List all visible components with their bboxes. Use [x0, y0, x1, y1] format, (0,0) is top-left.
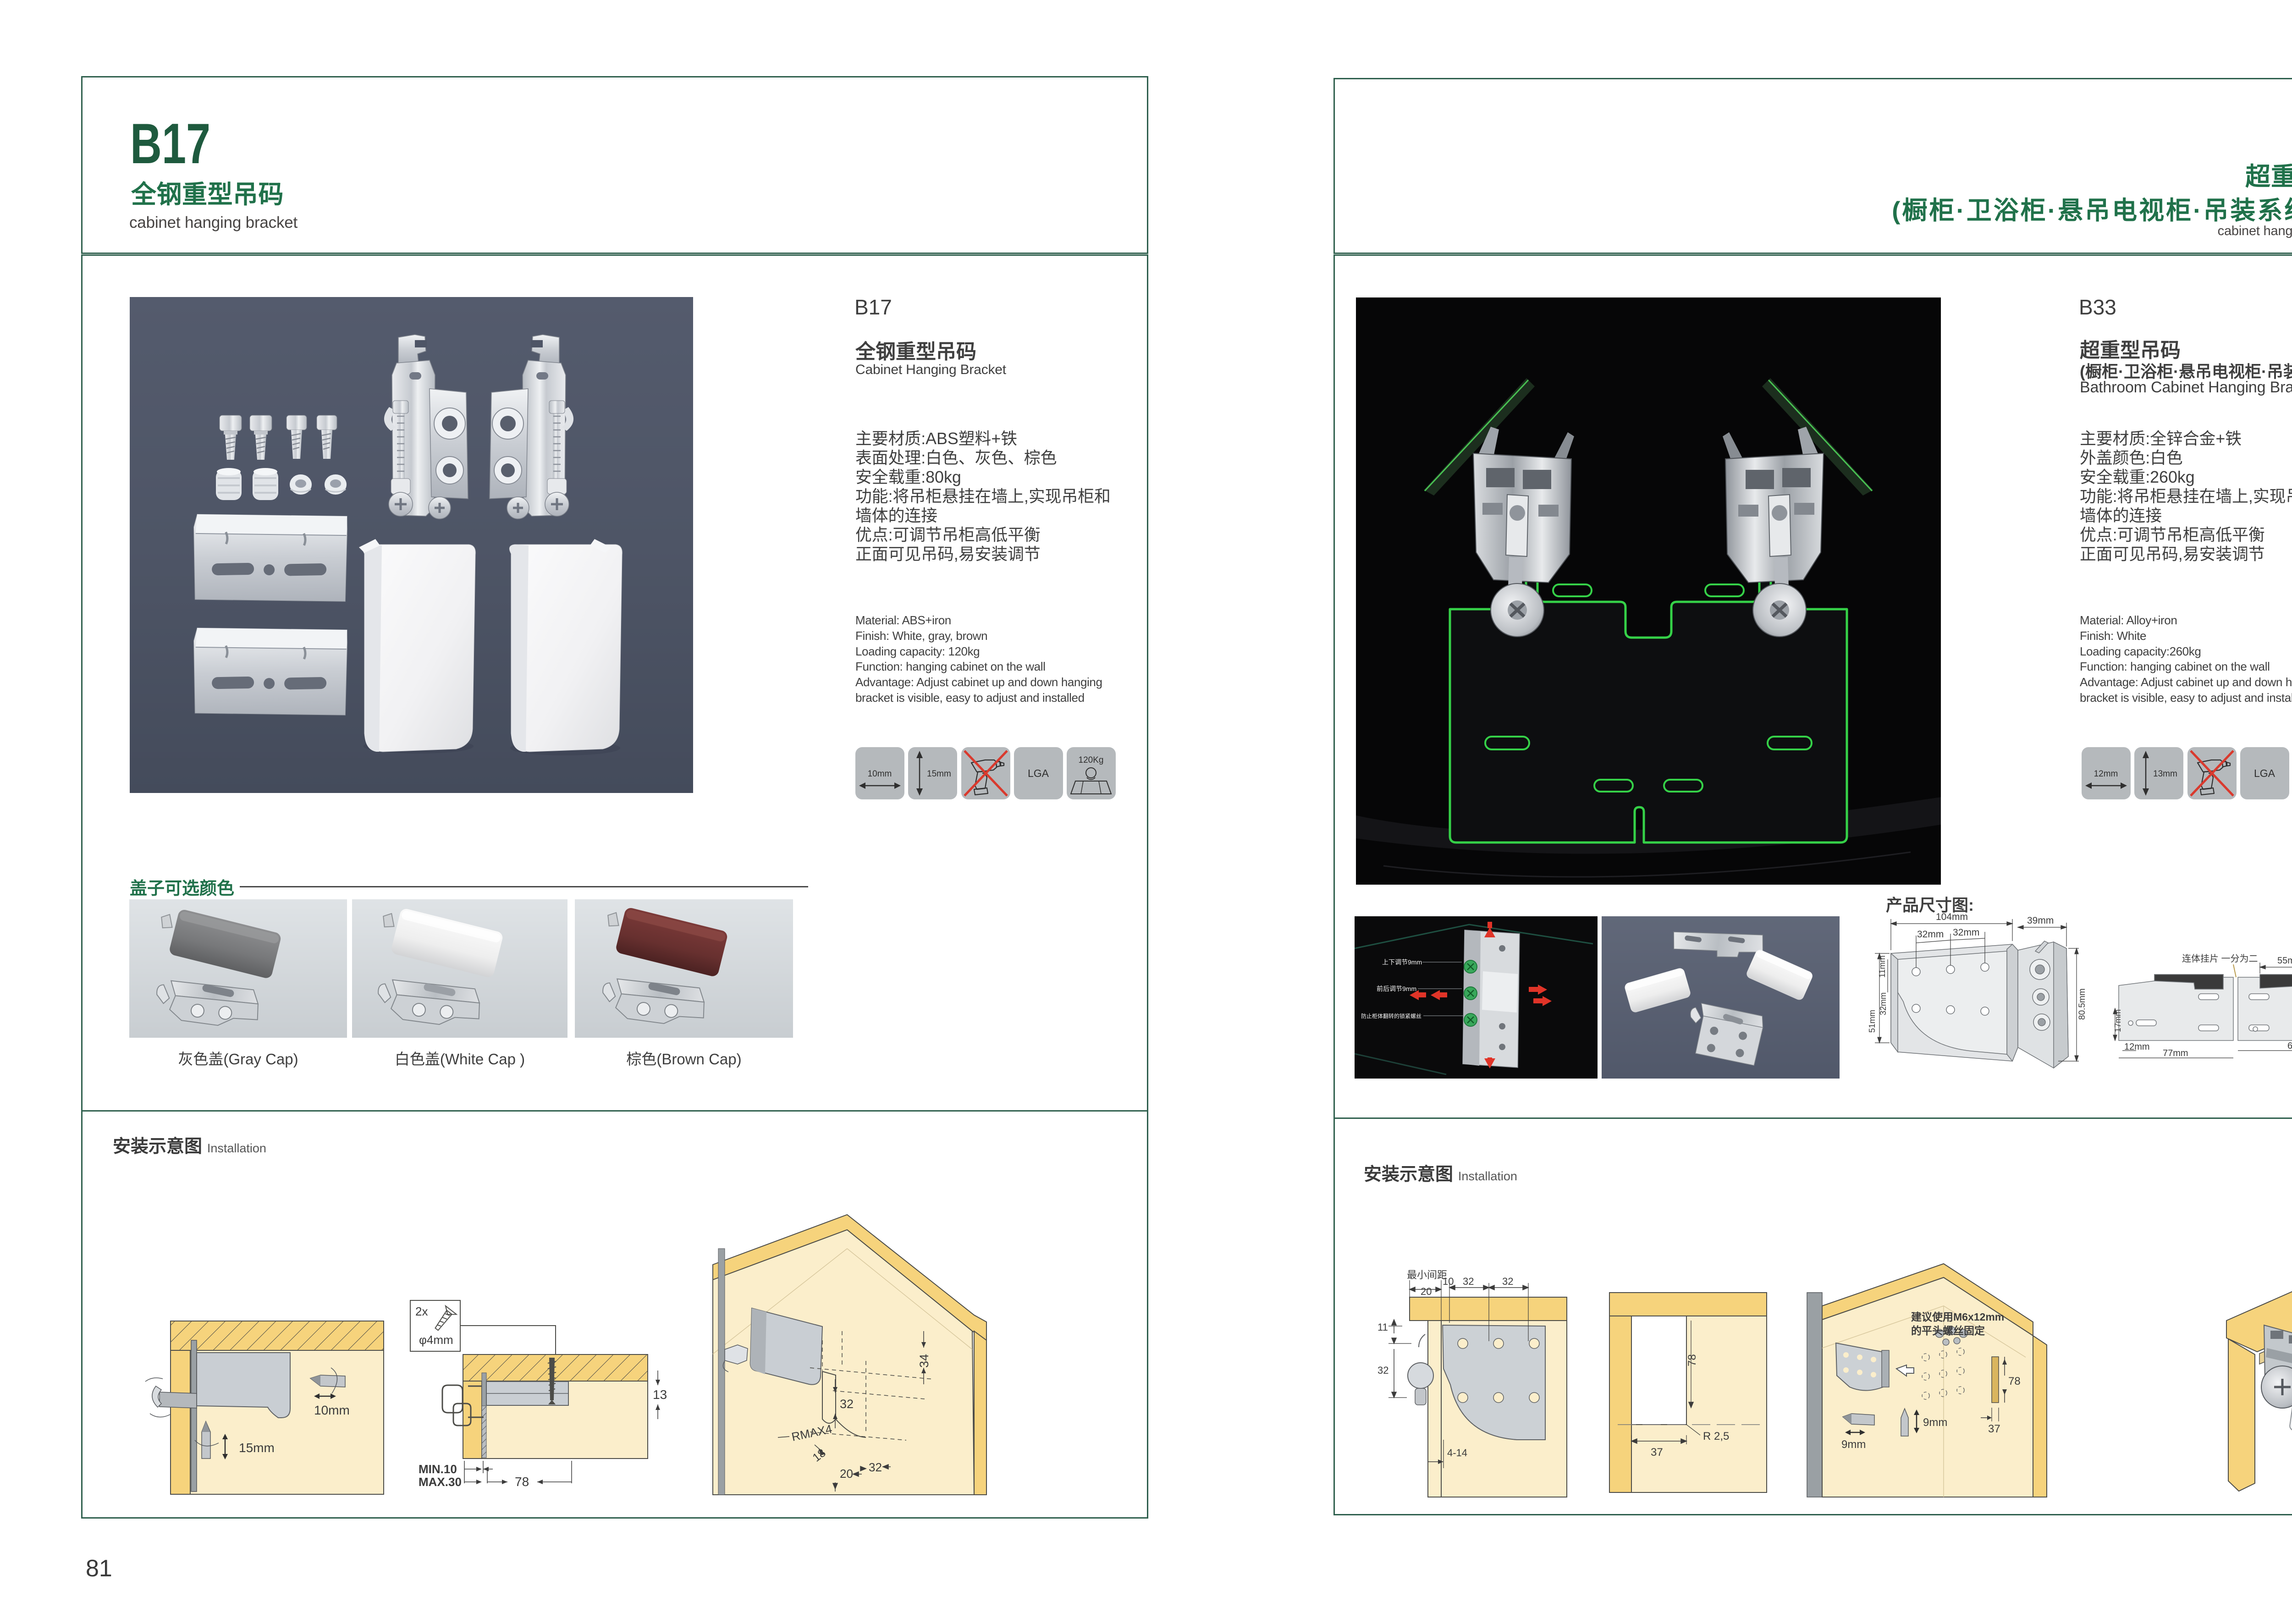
svg-text:φ4mm: φ4mm — [419, 1333, 453, 1347]
svg-text:80.5mm: 80.5mm — [2077, 988, 2087, 1020]
svg-text:LGA: LGA — [1028, 767, 1049, 779]
svg-text:51mm: 51mm — [1868, 1010, 1877, 1033]
svg-text:13mm: 13mm — [2153, 769, 2177, 779]
svg-text:55mm: 55mm — [2277, 956, 2292, 966]
svg-text:12mm: 12mm — [2124, 1042, 2150, 1052]
svg-text:15mm: 15mm — [927, 769, 951, 779]
svg-text:R 2,5: R 2,5 — [1703, 1430, 1729, 1442]
svg-text:的平头螺丝固定: 的平头螺丝固定 — [1911, 1325, 1985, 1337]
svg-text:78: 78 — [515, 1475, 529, 1489]
svg-text:104mm: 104mm — [1936, 912, 1968, 922]
svg-text:防止柜体翻转的锁紧螺丝: 防止柜体翻转的锁紧螺丝 — [1361, 1013, 1421, 1019]
svg-text:建议使用M6x12mm: 建议使用M6x12mm — [1911, 1311, 2004, 1323]
svg-text:9mm: 9mm — [1841, 1438, 1866, 1451]
svg-text:37: 37 — [1651, 1446, 1663, 1459]
svg-text:32: 32 — [869, 1460, 882, 1474]
svg-text:9mm: 9mm — [1923, 1416, 1947, 1429]
svg-text:13: 13 — [653, 1387, 667, 1402]
svg-text:120Kg: 120Kg — [1079, 755, 1104, 765]
svg-text:63mm: 63mm — [2287, 1041, 2292, 1051]
svg-text:前后调节9mm: 前后调节9mm — [1377, 985, 1416, 992]
svg-text:39mm: 39mm — [2027, 915, 2054, 926]
svg-text:12mm: 12mm — [2094, 769, 2118, 779]
svg-text:15mm: 15mm — [239, 1441, 275, 1455]
svg-text:20: 20 — [1421, 1286, 1432, 1297]
svg-text:17mm: 17mm — [2113, 1009, 2122, 1032]
svg-text:32mm: 32mm — [1917, 929, 1944, 940]
svg-text:10: 10 — [1443, 1276, 1454, 1287]
svg-text:32mm: 32mm — [1879, 992, 1888, 1015]
svg-text:4-14: 4-14 — [1447, 1447, 1467, 1459]
svg-text:LGA: LGA — [2254, 767, 2275, 779]
svg-text:32: 32 — [840, 1397, 854, 1411]
svg-text:34: 34 — [917, 1354, 931, 1368]
svg-text:10mm: 10mm — [868, 769, 892, 779]
svg-text:连体挂片 一分为二: 连体挂片 一分为二 — [2182, 953, 2258, 964]
svg-text:32: 32 — [1377, 1365, 1388, 1376]
svg-text:10mm: 10mm — [314, 1403, 350, 1417]
svg-text:77mm: 77mm — [2163, 1048, 2188, 1058]
svg-text:32: 32 — [1463, 1276, 1474, 1287]
svg-text:32: 32 — [1502, 1276, 1513, 1287]
svg-text:32mm: 32mm — [1953, 927, 1979, 938]
svg-text:11mm: 11mm — [1878, 955, 1887, 978]
svg-text:MIN.10: MIN.10 — [419, 1462, 457, 1476]
svg-text:78: 78 — [1686, 1354, 1698, 1366]
svg-text:20: 20 — [840, 1467, 853, 1481]
svg-text:78: 78 — [2008, 1375, 2021, 1387]
svg-text:最小间距: 最小间距 — [1407, 1269, 1447, 1281]
svg-text:上下调节9mm: 上下调节9mm — [1382, 958, 1422, 966]
svg-text:MAX.30: MAX.30 — [419, 1475, 462, 1489]
svg-text:2x: 2x — [415, 1305, 428, 1318]
svg-text:37: 37 — [1988, 1423, 2000, 1435]
svg-text:11: 11 — [1377, 1321, 1388, 1333]
